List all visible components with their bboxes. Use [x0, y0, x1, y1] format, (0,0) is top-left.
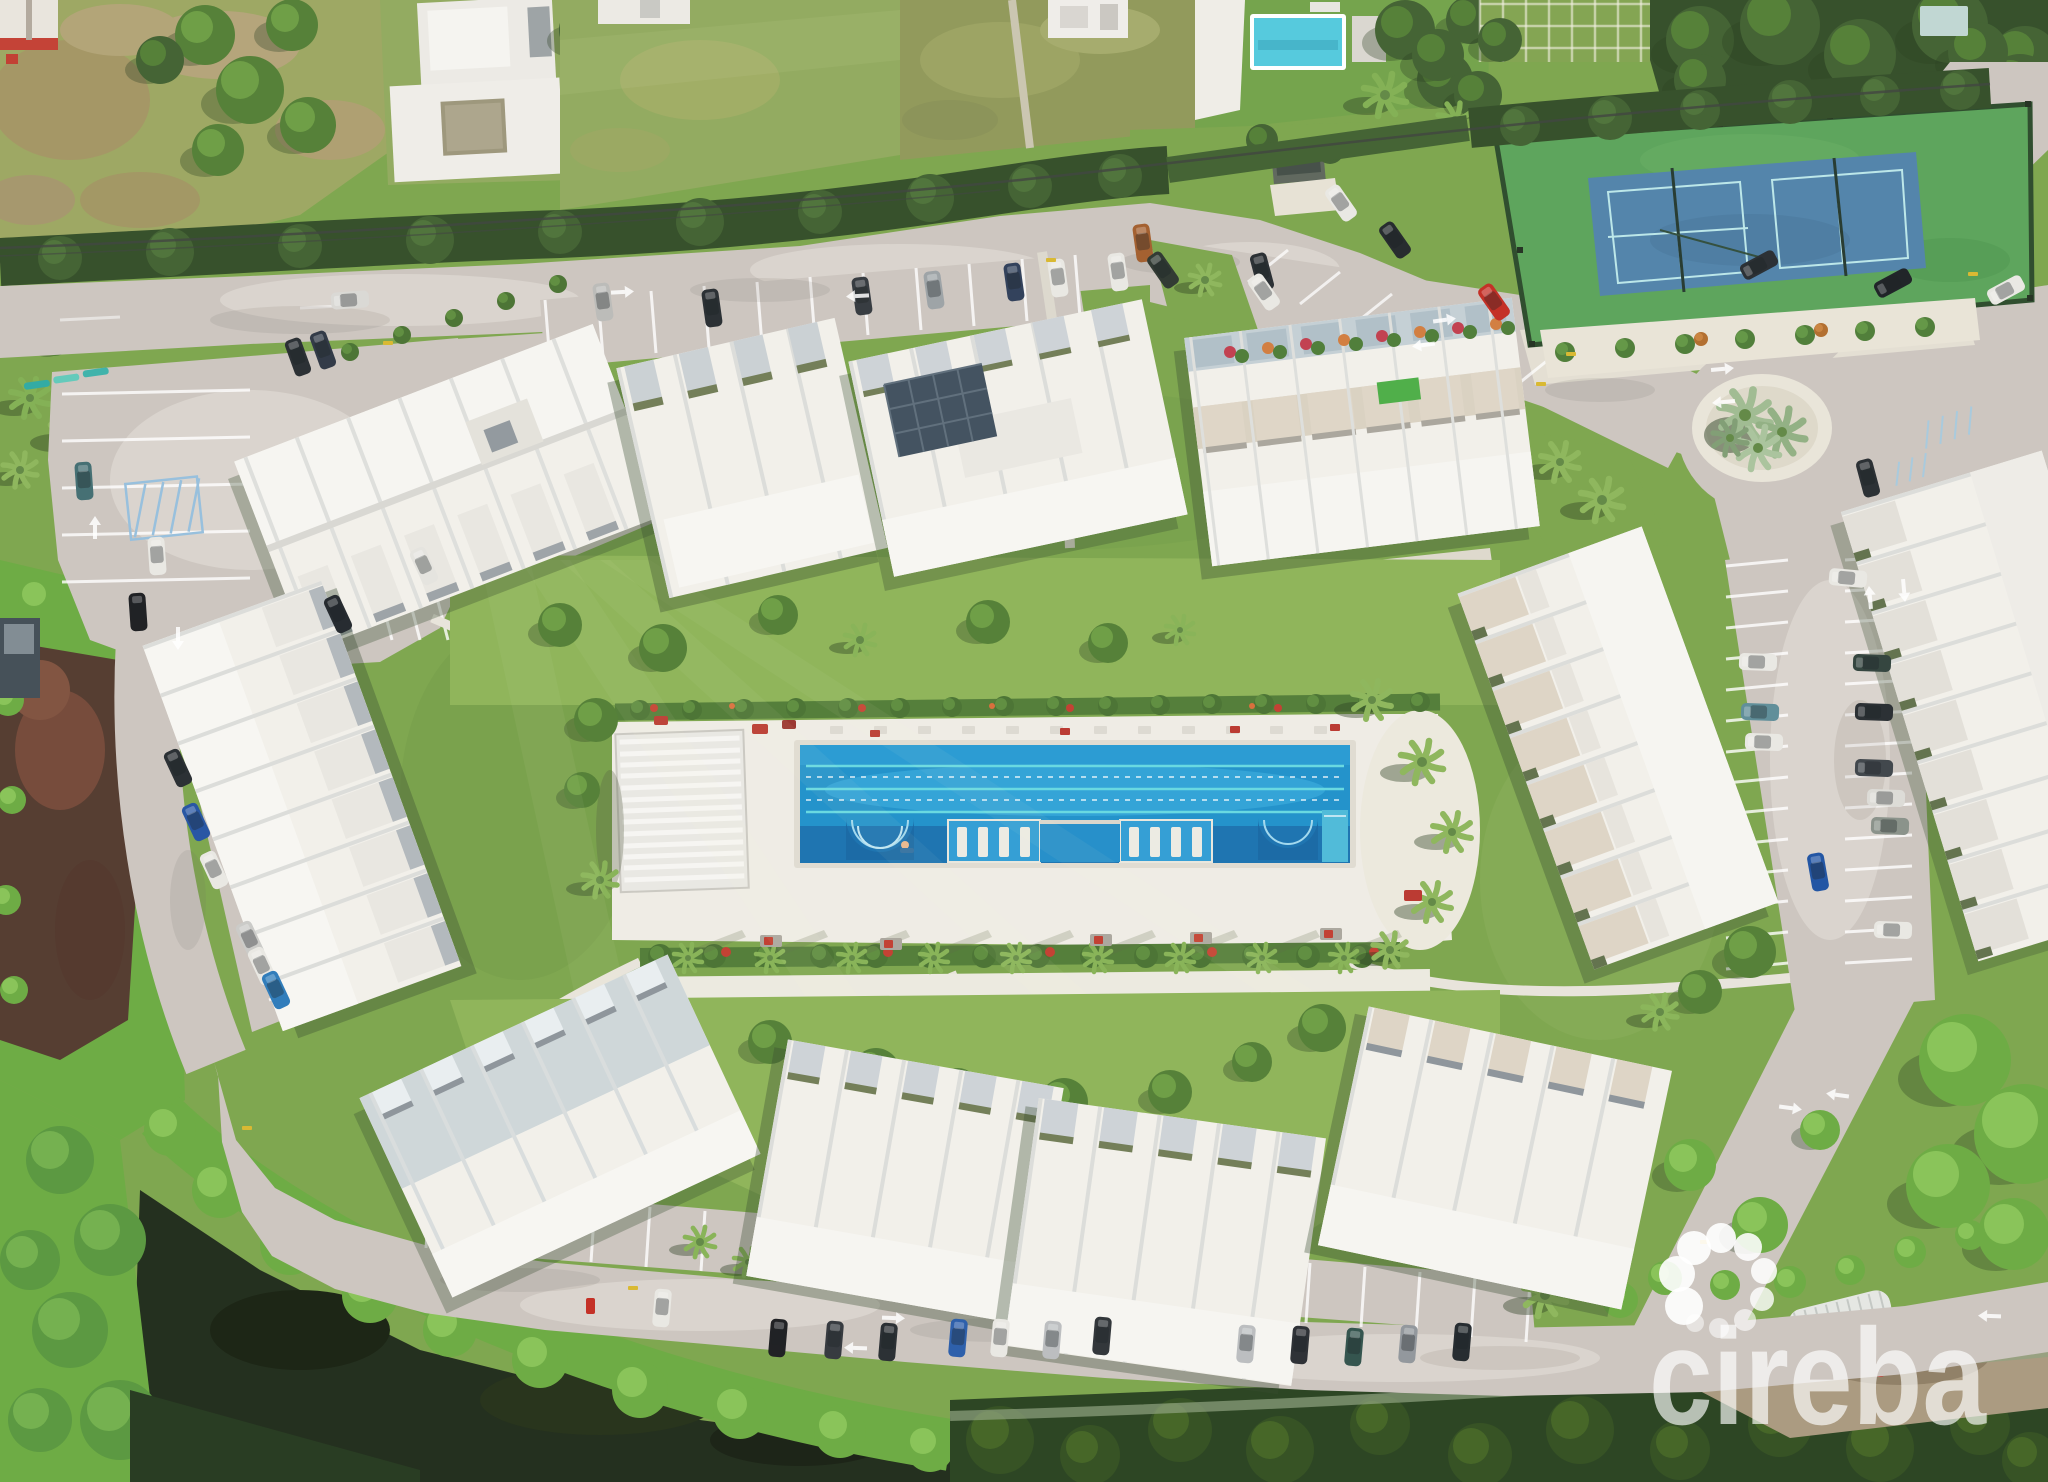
svg-text:cireba: cireba — [1649, 1301, 1987, 1454]
